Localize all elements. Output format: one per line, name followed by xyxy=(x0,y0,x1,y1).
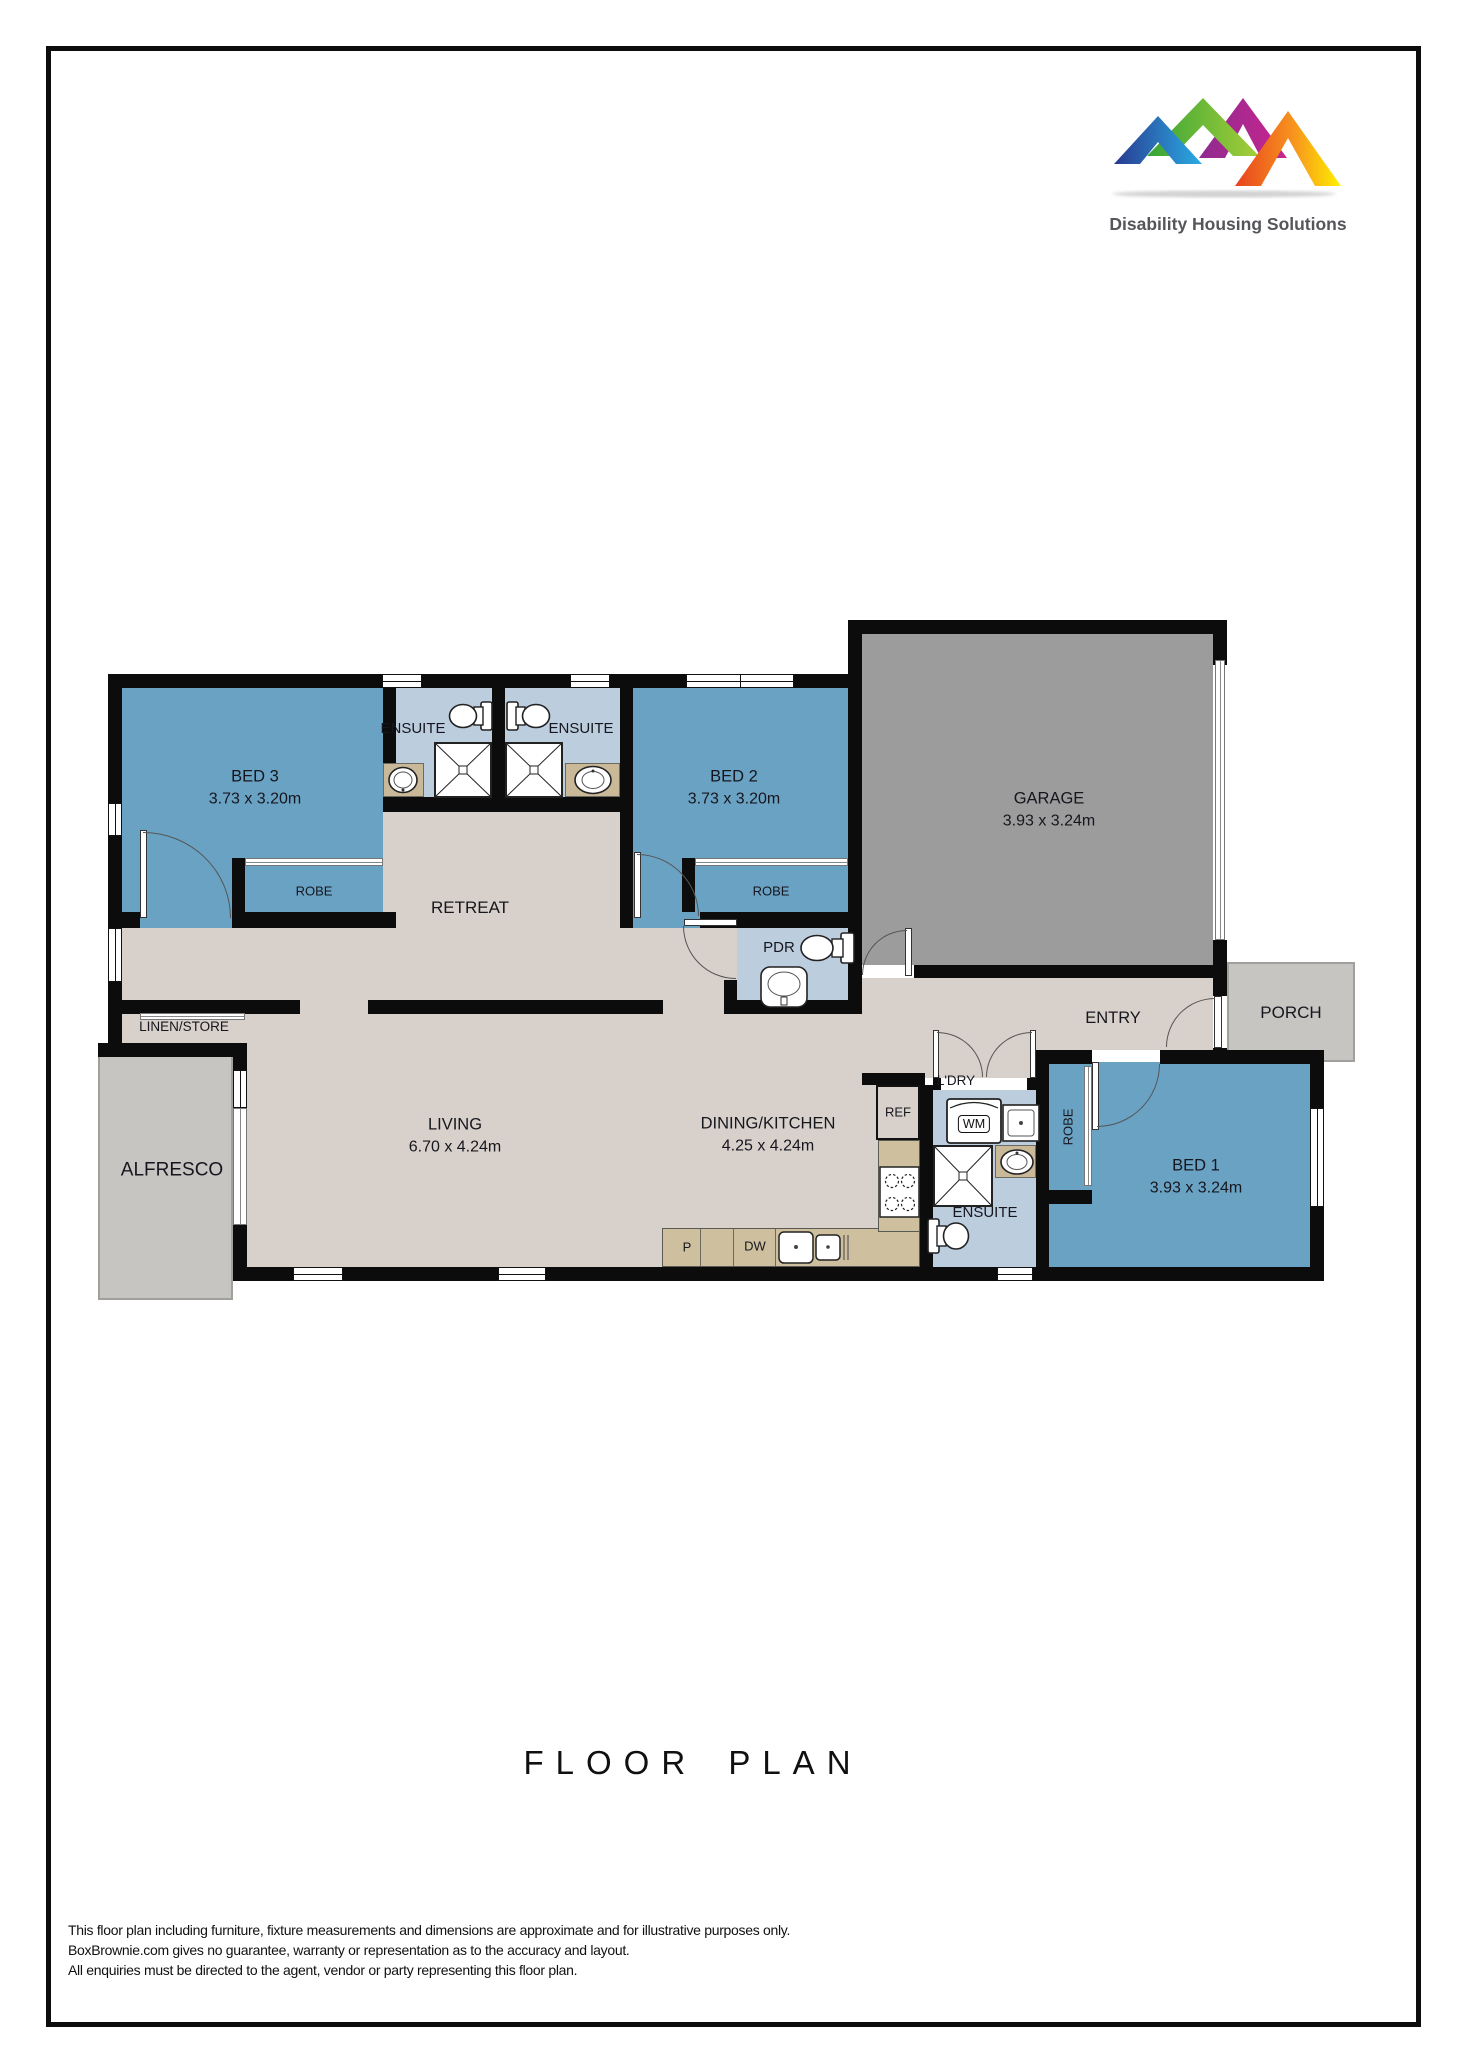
room-label-porch: PORCH xyxy=(1260,1002,1321,1024)
wall xyxy=(1160,1050,1324,1064)
room-label-robe: ROBE xyxy=(296,882,333,899)
sliding-door xyxy=(245,858,383,866)
window xyxy=(108,803,122,836)
wall xyxy=(1213,940,1227,965)
sliding-glass-door xyxy=(233,1108,247,1225)
cooktop-icon xyxy=(879,1166,920,1218)
room-name: BED 1 xyxy=(1150,1156,1243,1178)
window xyxy=(108,928,122,982)
room-label-alfresco: ALFRESCO xyxy=(121,1157,223,1182)
sliding-door xyxy=(695,858,848,866)
sink-icon xyxy=(386,765,420,795)
bench-divider xyxy=(733,1229,734,1266)
toilet-icon xyxy=(448,700,494,732)
wall xyxy=(848,620,1227,634)
disclaimer-line: This floor plan including furniture, fix… xyxy=(68,1920,790,1940)
washing-machine-label: WM xyxy=(958,1115,990,1133)
room-label-ldry: L'DRY xyxy=(937,1072,975,1090)
room-dims: 3.73 x 3.20m xyxy=(688,788,781,809)
wall xyxy=(98,1043,247,1057)
room-label-ensuite: ENSUITE xyxy=(952,1203,1017,1223)
wall xyxy=(233,1267,1324,1281)
room-name: LIVING xyxy=(409,1115,502,1137)
window xyxy=(498,1267,546,1281)
wall xyxy=(122,1000,300,1014)
room-label-dining: DINING/KITCHEN 4.25 x 4.24m xyxy=(701,1114,836,1157)
shower-icon xyxy=(505,742,563,798)
room-label-bed2: BED 2 3.73 x 3.20m xyxy=(688,767,781,810)
wall xyxy=(862,1073,925,1085)
room-dims: 3.93 x 3.24m xyxy=(1150,1177,1243,1198)
room-label-garage: GARAGE 3.93 x 3.24m xyxy=(1003,789,1096,832)
sink-icon xyxy=(998,1147,1036,1177)
wall xyxy=(233,1043,247,1070)
wall xyxy=(1213,962,1227,996)
wall xyxy=(232,912,396,928)
disclaimer: This floor plan including furniture, fix… xyxy=(68,1920,790,1980)
room-label-ensuite: ENSUITE xyxy=(548,719,613,739)
bench-divider xyxy=(775,1229,776,1266)
room-label-bed1: BED 1 3.93 x 3.24m xyxy=(1150,1156,1243,1199)
entry-floor xyxy=(862,978,1213,1050)
room-label-retreat: RETREAT xyxy=(431,897,509,919)
sink-icon xyxy=(572,764,614,796)
door-leaf xyxy=(684,919,737,926)
room-label-ensuite: ENSUITE xyxy=(380,719,445,739)
wall xyxy=(1036,1190,1092,1204)
company-name: Disability Housing Solutions xyxy=(1098,214,1358,235)
room-label-bed3: BED 3 3.73 x 3.20m xyxy=(209,767,302,810)
wall xyxy=(368,1000,663,1014)
toilet-icon xyxy=(798,931,856,965)
disclaimer-line: BoxBrownie.com gives no guarantee, warra… xyxy=(68,1940,790,1960)
sink-icon xyxy=(760,966,808,1008)
room-label-ref: REF xyxy=(885,1103,911,1120)
room-dims: 3.93 x 3.24m xyxy=(1003,810,1096,831)
shower-icon xyxy=(434,742,492,798)
wall xyxy=(108,674,122,1057)
room-label-robe: ROBE xyxy=(1059,1109,1076,1146)
room-name: DINING/KITCHEN xyxy=(701,1114,836,1136)
kitchen-sink-icon xyxy=(778,1230,852,1265)
room-label-linen: LINEN/STORE xyxy=(139,1018,229,1036)
room-dims: 3.73 x 3.20m xyxy=(209,788,302,809)
page-title: FLOOR PLAN xyxy=(523,1744,862,1782)
window xyxy=(997,1267,1033,1281)
window xyxy=(382,674,422,688)
disclaimer-line: All enquiries must be directed to the ag… xyxy=(68,1960,790,1980)
bench-divider xyxy=(700,1229,701,1266)
window xyxy=(233,1070,247,1108)
room-label-pdr: PDR xyxy=(763,938,795,958)
room-label-living: LIVING 6.70 x 4.24m xyxy=(409,1115,502,1158)
room-name: BED 2 xyxy=(688,767,781,789)
room-label-robe: ROBE xyxy=(753,882,790,899)
company-logo-icon xyxy=(1102,86,1352,206)
window xyxy=(686,674,794,688)
window xyxy=(1310,1108,1324,1207)
entry-floor xyxy=(862,1050,925,1073)
room-label-dw: DW xyxy=(744,1237,766,1254)
room-name: BED 3 xyxy=(209,767,302,789)
sliding-door xyxy=(1084,1066,1092,1186)
room-dims: 6.70 x 4.24m xyxy=(409,1136,502,1157)
laundry-trough-icon xyxy=(1002,1104,1040,1142)
room-label-pantry: P xyxy=(683,1238,692,1255)
wall xyxy=(383,797,633,812)
garage-door xyxy=(1215,660,1225,940)
toilet-icon xyxy=(505,700,551,732)
wall xyxy=(914,965,1213,978)
room-dims: 4.25 x 4.24m xyxy=(701,1135,836,1156)
wall xyxy=(108,912,140,928)
shower-icon xyxy=(933,1145,993,1207)
window xyxy=(570,674,610,688)
wall xyxy=(492,674,505,812)
wall xyxy=(232,858,245,912)
front-door-leaf xyxy=(1214,996,1222,1048)
wall xyxy=(620,912,633,928)
room-label-entry: ENTRY xyxy=(1085,1008,1141,1030)
wall xyxy=(1213,620,1227,665)
window xyxy=(293,1267,343,1281)
wall xyxy=(1036,1062,1049,1281)
floor-plan-page: Disability Housing Solutions xyxy=(0,0,1462,2068)
room-name: GARAGE xyxy=(1003,789,1096,811)
